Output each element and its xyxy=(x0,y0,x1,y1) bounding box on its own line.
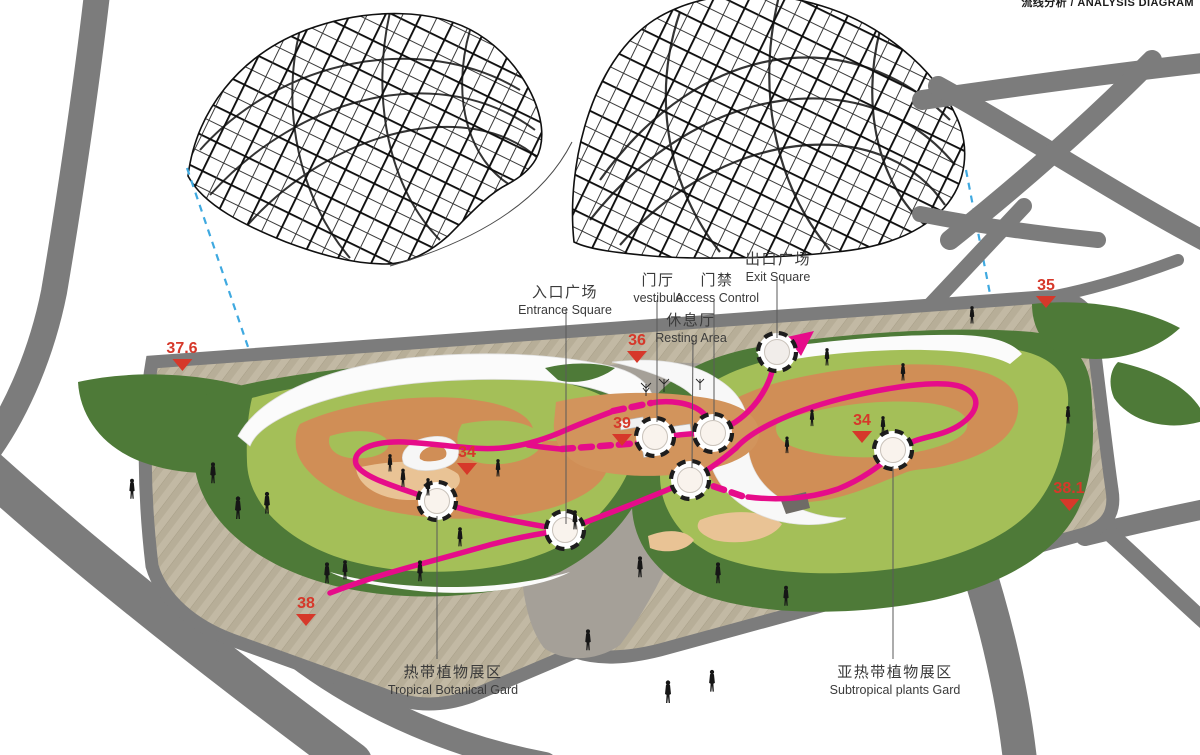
elevation-marker-38-1: 38.1 xyxy=(1053,481,1084,511)
elevation-value: 35 xyxy=(1037,278,1055,294)
elevation-triangle-icon xyxy=(627,351,647,363)
label-resting-area: 休息厅 Resting Area xyxy=(655,309,727,345)
elevation-triangle-icon xyxy=(1059,499,1079,511)
elevation-triangle-icon xyxy=(457,463,477,475)
elevation-marker-34-east: 34 xyxy=(852,413,872,443)
label-subtropical-garden-zh: 亚热带植物展区 xyxy=(830,661,961,682)
right-greenhouse-wireframe xyxy=(573,0,965,258)
elevation-triangle-icon xyxy=(172,359,192,371)
elevation-marker-38: 38 xyxy=(296,596,316,626)
elevation-value: 36 xyxy=(628,333,646,349)
left-greenhouse-wireframe xyxy=(188,12,542,264)
label-entrance-square-en: Entrance Square xyxy=(518,303,612,317)
elevation-triangle-icon xyxy=(296,614,316,626)
elevation-value: 34 xyxy=(458,445,476,461)
label-resting-area-zh: 休息厅 xyxy=(655,309,727,330)
route-node xyxy=(758,333,796,371)
label-entrance-square: 入口广场 Entrance Square xyxy=(518,281,612,317)
route-node xyxy=(636,418,674,456)
elevation-value: 38 xyxy=(297,596,315,612)
elevation-value: 38.1 xyxy=(1053,481,1084,497)
elevation-marker-36: 36 xyxy=(627,333,647,363)
label-exit-square-en: Exit Square xyxy=(745,270,811,284)
elevation-marker-39: 39 xyxy=(612,416,632,446)
label-exit-square-zh: 出口广场 xyxy=(745,248,811,269)
elevation-triangle-icon xyxy=(612,434,632,446)
label-tropical-garden-en: Tropical Botanical Gard xyxy=(388,683,518,697)
label-subtropical-garden: 亚热带植物展区 Subtropical plants Gard xyxy=(830,661,961,697)
label-tropical-garden: 热带植物展区 Tropical Botanical Gard xyxy=(388,661,518,697)
label-tropical-garden-zh: 热带植物展区 xyxy=(388,661,518,682)
elevation-marker-37-6: 37.6 xyxy=(166,341,197,371)
route-node xyxy=(546,511,584,549)
label-exit-square: 出口广场 Exit Square xyxy=(745,248,811,284)
route-node xyxy=(671,461,709,499)
cropped-title-note: 流线分析 / ANALYSIS DIAGRAM xyxy=(1021,0,1194,10)
route-node xyxy=(874,431,912,469)
elevation-marker-35: 35 xyxy=(1036,278,1056,308)
elevation-value: 34 xyxy=(853,413,871,429)
label-entrance-square-zh: 入口广场 xyxy=(518,281,612,302)
elevation-value: 37.6 xyxy=(166,341,197,357)
elevation-triangle-icon xyxy=(852,431,872,443)
diagram-canvas xyxy=(0,0,1200,755)
label-subtropical-garden-en: Subtropical plants Gard xyxy=(830,683,961,697)
route-node xyxy=(694,414,732,452)
elevation-value: 39 xyxy=(613,416,631,432)
label-access-control-en: Access Control xyxy=(675,291,759,305)
label-resting-area-en: Resting Area xyxy=(655,331,727,345)
elevation-marker-34-west: 34 xyxy=(457,445,477,475)
route-node xyxy=(418,482,456,520)
site-circulation-diagram: 流线分析 / ANALYSIS DIAGRAM 入口广场 Entrance Sq… xyxy=(0,0,1200,755)
elevation-triangle-icon xyxy=(1036,296,1056,308)
